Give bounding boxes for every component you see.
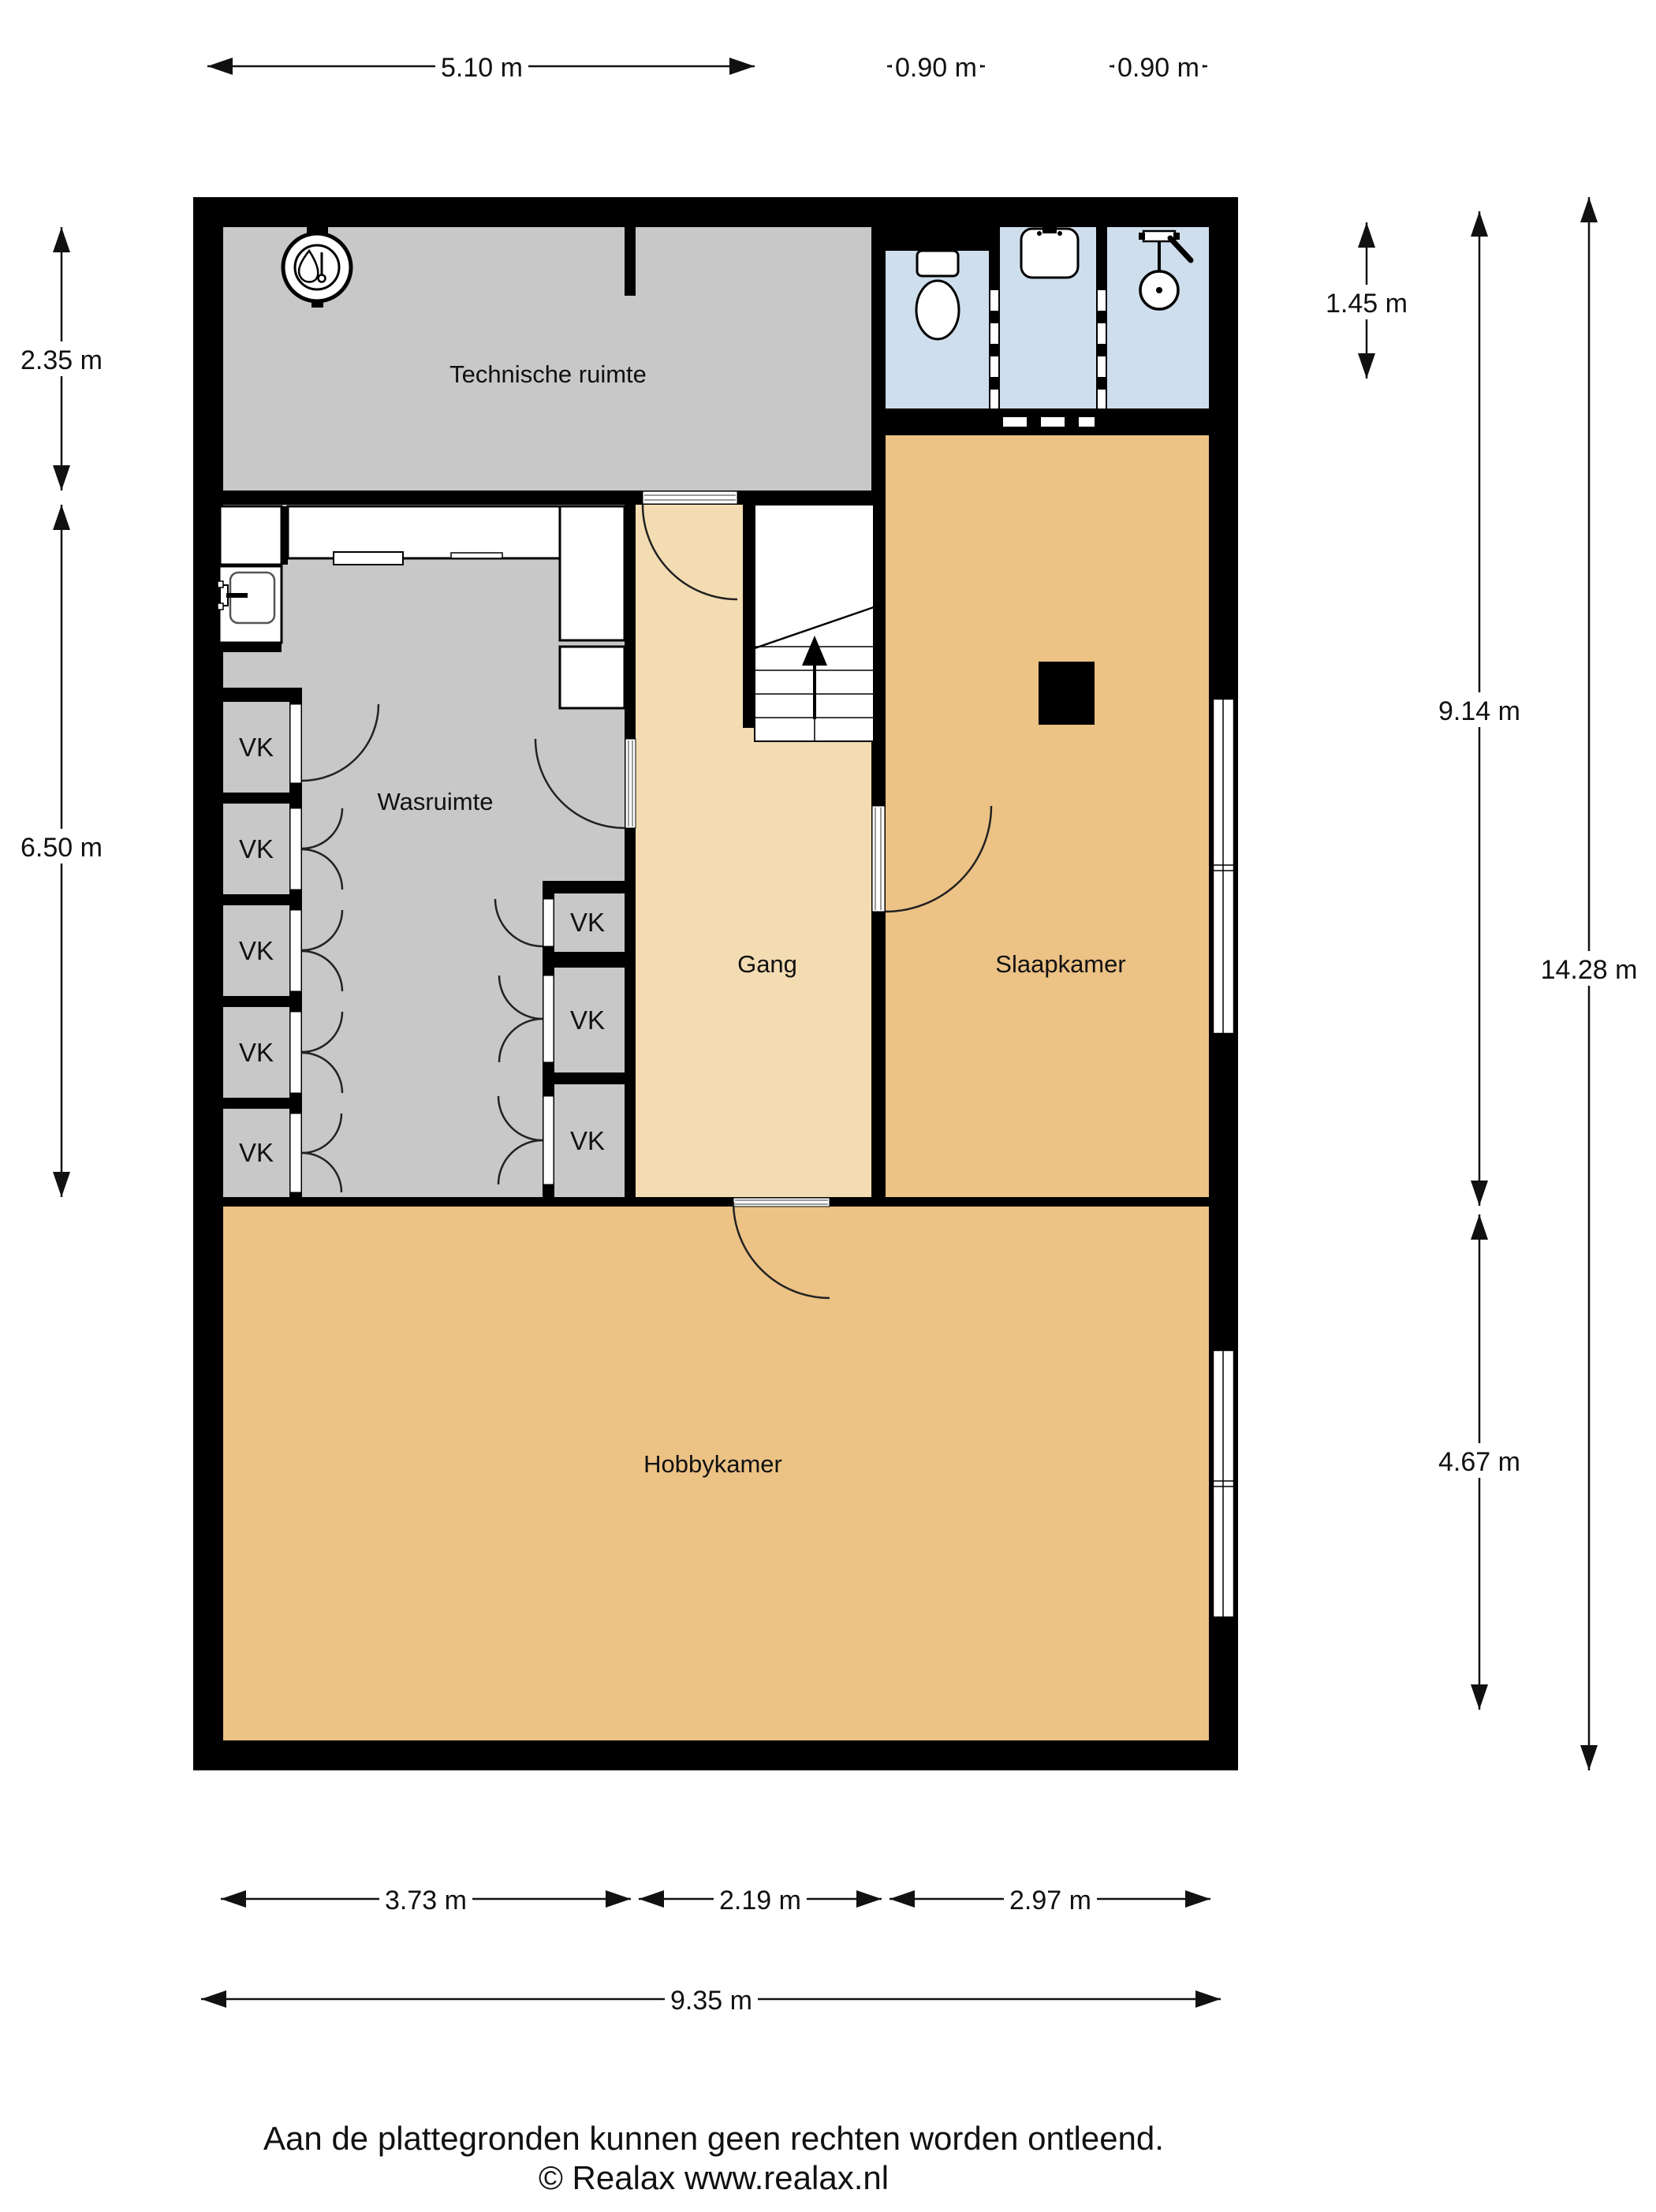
cabinet-right-lower — [560, 647, 625, 708]
wall-vk-left-divider-3 — [223, 996, 289, 1007]
wall-vk-right-top — [543, 881, 625, 893]
wall-vk-right-divider-1 — [554, 952, 625, 968]
dim-bottom-gang: 2.19 m — [719, 1886, 801, 1915]
wall-stall-divider-1 — [989, 227, 1000, 408]
vk-left-5-label: VK — [239, 1138, 274, 1167]
wall-wasruimte-gang — [625, 500, 636, 1207]
vk-left-4-label: VK — [239, 1038, 274, 1067]
dim-left-technische: 2.35 m — [21, 345, 103, 375]
vk-left-3-label: VK — [239, 936, 274, 965]
window-slaapkamer — [1213, 699, 1234, 1034]
washbasin-icon — [218, 566, 282, 643]
vk-right-3-label: VK — [570, 1126, 605, 1155]
footer-disclaimer: Aan de plattegronden kunnen geen rechten… — [263, 2120, 1164, 2157]
wall-hobbykamer-north — [223, 1197, 1209, 1207]
dim-right-slaapkamer: 9.14 m — [1438, 696, 1520, 726]
footer-copyright: © Realax www.realax.nl — [539, 2159, 889, 2196]
cabinet-top-left — [220, 506, 282, 565]
dim-top-shower: 0.90 m — [1117, 53, 1199, 83]
dim-bottom-slaapkamer: 2.97 m — [1009, 1886, 1091, 1915]
stairs — [755, 505, 874, 741]
wall-stub-technische — [625, 227, 636, 296]
wall-exterior-bottom — [193, 1740, 1238, 1770]
counter-appliance — [334, 552, 403, 565]
wall-technische-south — [223, 491, 871, 505]
wall-vk-left-divider-4 — [223, 1098, 289, 1109]
wall-vk-left-divider-1 — [223, 793, 289, 804]
wall-exterior-left — [193, 197, 223, 1770]
wall-wc-stall-top — [871, 227, 1000, 251]
hobbykamer-label: Hobbykamer — [643, 1450, 782, 1478]
dim-bottom-total: 9.35 m — [670, 1986, 752, 2016]
technische-ruimte-label: Technische ruimte — [449, 360, 647, 388]
dim-bottom-wasruimte: 3.73 m — [385, 1886, 467, 1915]
wall-exterior-top — [193, 197, 1238, 227]
window-hobbykamer — [1213, 1350, 1234, 1617]
vk-left-2-label: VK — [239, 834, 274, 864]
gang-label: Gang — [737, 950, 797, 978]
cabinet-tall-right — [560, 506, 625, 640]
floorplan-page: Technische ruimte Wasruimte Gang Slaapka… — [0, 0, 1656, 2208]
slaapkamer-label: Slaapkamer — [995, 950, 1125, 978]
wall-stall-divider-2 — [1096, 227, 1107, 408]
counter — [288, 506, 560, 558]
dim-right-total: 14.28 m — [1541, 955, 1638, 985]
footer: Aan de plattegronden kunnen geen rechten… — [263, 2120, 1164, 2196]
wasruimte-label: Wasruimte — [378, 788, 494, 815]
wall-vk-left-top — [193, 688, 302, 702]
sink-icon — [1021, 227, 1078, 278]
vk-left-1-label: VK — [239, 733, 274, 762]
dim-left-wasruimte: 6.50 m — [21, 833, 103, 863]
column-slaapkamer — [1039, 662, 1095, 725]
vk-right-2-label: VK — [570, 1005, 605, 1035]
toilet-icon — [916, 251, 959, 339]
dim-right-bathroom: 1.45 m — [1326, 289, 1408, 319]
room-floors — [223, 227, 1209, 1740]
wall-vk-left-divider-2 — [223, 894, 289, 905]
wall-stairwell-west — [743, 505, 755, 728]
vk-right-1-label: VK — [570, 908, 605, 937]
dim-top-main: 5.10 m — [441, 53, 523, 83]
slaapkamer-floor — [886, 435, 1209, 1197]
dim-right-hobbykamer: 4.67 m — [1438, 1447, 1520, 1477]
wall-vk-right-divider-2 — [554, 1072, 625, 1084]
wall-sink-cabinet-south — [219, 643, 282, 652]
floorplan-drawing: Technische ruimte Wasruimte Gang Slaapka… — [0, 0, 1656, 2208]
counter-detail — [451, 553, 502, 558]
dim-top-wc: 0.90 m — [895, 53, 977, 83]
